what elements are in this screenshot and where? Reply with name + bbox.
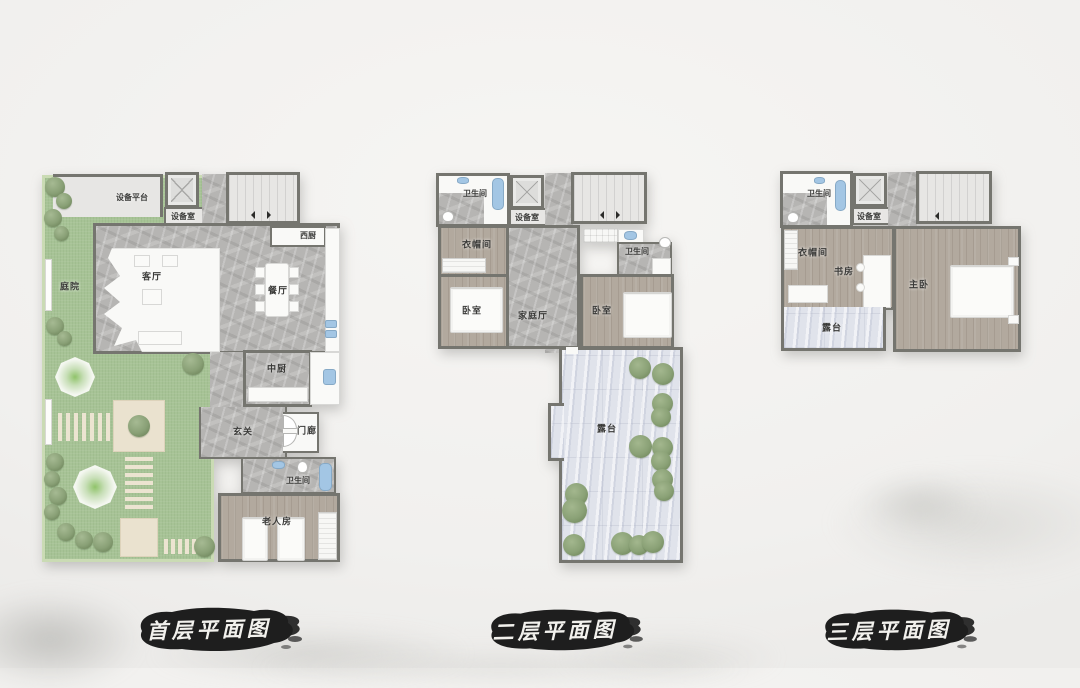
chair-icon bbox=[856, 263, 865, 272]
floorplan-presentation: { "page": { "background": "#f1f0ee", "st… bbox=[0, 0, 1080, 668]
tree-icon bbox=[57, 331, 72, 346]
sofa-icon bbox=[138, 331, 182, 345]
bush-icon bbox=[652, 363, 674, 385]
tree-icon bbox=[75, 531, 93, 549]
tree-icon bbox=[46, 453, 64, 471]
room-label: 卫生间 bbox=[625, 248, 649, 256]
stair-arrow-icon bbox=[267, 211, 275, 219]
umbrella-icon bbox=[55, 357, 95, 397]
toilet-icon bbox=[659, 237, 671, 248]
staircase bbox=[571, 172, 647, 224]
tree-icon bbox=[93, 532, 113, 552]
floor-plan-third: 卫生间 设备室 衣帽间 书房 主卧 露台 bbox=[778, 169, 1024, 354]
mist-shape bbox=[860, 475, 980, 535]
elevator-shaft-icon bbox=[853, 173, 887, 207]
terrace-notch bbox=[548, 403, 564, 461]
terrace-door bbox=[566, 347, 578, 354]
sink-icon bbox=[814, 177, 825, 184]
tree-icon bbox=[54, 226, 69, 241]
room-label: 主卧 bbox=[909, 282, 929, 291]
stair-arrow-icon bbox=[931, 212, 939, 220]
tree-icon bbox=[128, 415, 150, 437]
stair-arrow-icon bbox=[247, 211, 255, 219]
elevator-shaft-icon bbox=[165, 172, 199, 208]
floor-plan-first: 设备平台 设备室 西厨 客厅 餐厅 庭院 中厨 玄关 门廊 卫生间 老人房 bbox=[42, 171, 342, 563]
bathtub-icon bbox=[319, 463, 332, 491]
bush-icon bbox=[629, 435, 652, 458]
room-label: 庭院 bbox=[60, 284, 80, 293]
kitchen-counter bbox=[248, 387, 308, 402]
room-label: 卫生间 bbox=[807, 190, 831, 198]
room-label: 衣帽间 bbox=[798, 250, 828, 259]
toilet-icon bbox=[442, 211, 454, 222]
room-label: 书房 bbox=[834, 269, 854, 278]
tree-icon bbox=[44, 471, 60, 487]
tree-icon bbox=[194, 536, 215, 557]
bush-icon bbox=[654, 481, 674, 501]
nightstand-icon bbox=[1008, 315, 1019, 324]
room-label: 老人房 bbox=[262, 519, 292, 528]
mist-shape bbox=[250, 648, 750, 688]
sofa-icon bbox=[134, 255, 150, 267]
room-label: 设备室 bbox=[515, 214, 539, 222]
room-label: 西厨 bbox=[300, 232, 316, 240]
staircase bbox=[226, 172, 300, 224]
room-label: 餐厅 bbox=[268, 288, 288, 297]
room-label: 中厨 bbox=[267, 366, 287, 375]
appliance-icon bbox=[325, 330, 337, 338]
bed-icon bbox=[950, 265, 1014, 318]
bed-icon bbox=[623, 292, 672, 338]
stair-arrow-icon bbox=[616, 211, 624, 219]
mist-shape bbox=[0, 592, 140, 687]
room-label: 露台 bbox=[597, 426, 617, 435]
tree-icon bbox=[49, 487, 67, 505]
bush-icon bbox=[563, 534, 585, 556]
sofa-icon bbox=[162, 255, 178, 267]
toilet-icon bbox=[787, 212, 799, 223]
room-label: 玄关 bbox=[233, 429, 253, 438]
shelf-icon bbox=[442, 258, 486, 273]
room-label: 卧室 bbox=[462, 308, 482, 317]
room-family-hall bbox=[506, 225, 580, 349]
bathtub-icon bbox=[492, 178, 504, 210]
room-label: 卫生间 bbox=[286, 477, 310, 485]
hall-connector bbox=[888, 172, 917, 226]
fridge-icon bbox=[323, 369, 336, 385]
chair-icon bbox=[856, 283, 865, 292]
sink-icon bbox=[457, 177, 469, 184]
umbrella-icon bbox=[73, 465, 117, 509]
room-label: 露台 bbox=[822, 325, 842, 334]
patio-deck bbox=[120, 518, 158, 557]
mist-shape bbox=[830, 468, 1080, 578]
toilet-icon bbox=[297, 461, 308, 473]
bush-icon bbox=[562, 498, 587, 523]
tree-icon bbox=[56, 193, 72, 209]
room-label: 门廊 bbox=[297, 428, 317, 437]
stair-arrow-icon bbox=[596, 211, 604, 219]
room-label: 设备室 bbox=[171, 213, 195, 221]
tree-icon bbox=[44, 504, 60, 520]
first-floor-title: 首层平面图 bbox=[126, 605, 306, 655]
staircase bbox=[916, 171, 992, 224]
planter-icon bbox=[45, 259, 52, 311]
room-label: 设备平台 bbox=[116, 194, 148, 202]
room-label: 客厅 bbox=[142, 274, 162, 283]
bush-icon bbox=[642, 531, 664, 553]
tree-icon bbox=[44, 209, 62, 227]
closet-icon bbox=[583, 228, 618, 243]
nightstand-icon bbox=[1008, 257, 1019, 266]
corridor-floor bbox=[210, 352, 247, 409]
second-floor-title: 二层平面图 bbox=[476, 607, 648, 654]
room-label: 衣帽间 bbox=[462, 242, 492, 251]
coffee-table-icon bbox=[142, 289, 162, 305]
floor-plan-second: 卫生间 设备室 衣帽间 卧室 家庭厅 卫生间 卧室 露台 bbox=[435, 171, 683, 565]
sink-icon bbox=[624, 231, 637, 240]
room-label: 家庭厅 bbox=[518, 313, 548, 322]
shower-icon bbox=[652, 258, 671, 275]
desk-icon bbox=[863, 255, 891, 308]
bush-icon bbox=[651, 451, 671, 471]
tree-icon bbox=[182, 353, 204, 375]
tree-icon bbox=[57, 523, 75, 541]
planter-icon bbox=[45, 399, 52, 445]
third-floor-title: 三层平面图 bbox=[810, 607, 982, 654]
room-label: 设备室 bbox=[857, 213, 881, 221]
sink-icon bbox=[272, 461, 285, 469]
hall-connector bbox=[202, 174, 227, 226]
bush-icon bbox=[629, 357, 651, 379]
wardrobe-icon bbox=[318, 512, 337, 560]
elevator-shaft-icon bbox=[510, 175, 544, 209]
shelf-icon bbox=[784, 230, 798, 270]
room-label: 卫生间 bbox=[463, 190, 487, 198]
appliance-icon bbox=[325, 320, 337, 328]
bathtub-icon bbox=[835, 180, 846, 211]
room-label: 卧室 bbox=[592, 308, 612, 317]
bush-icon bbox=[651, 407, 671, 427]
room-west-kitchen bbox=[270, 226, 326, 247]
table-icon bbox=[788, 285, 828, 303]
